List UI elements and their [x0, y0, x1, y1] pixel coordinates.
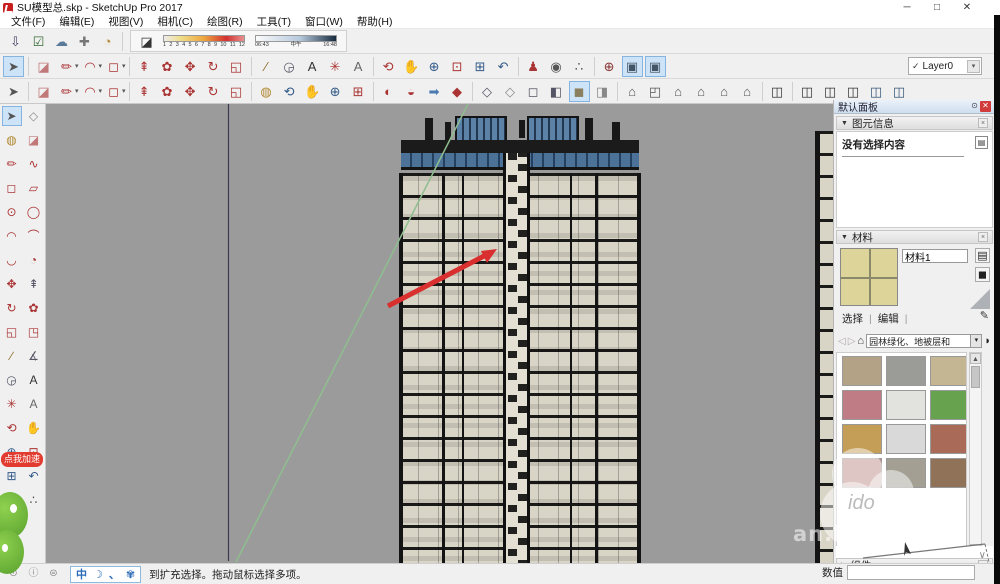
pushpull-tool-icon[interactable]: ⇞ [134, 81, 155, 102]
status-hint-text: 到扩充选择。拖动鼠标选择多项。 [149, 567, 307, 582]
eraser-tool-icon[interactable]: ◪ [33, 56, 54, 77]
scale-tool-icon[interactable]: ◱ [2, 322, 22, 342]
palette-row: ∕∡ [0, 346, 45, 366]
menu-item-4[interactable]: 绘图(R) [200, 14, 250, 29]
line-tool-icon[interactable]: ✏ [56, 81, 77, 102]
date-tick: 8 [208, 42, 211, 48]
forward-arrow-icon[interactable]: ▷ [848, 336, 856, 347]
scale-tool-icon[interactable]: ◱ [226, 81, 247, 102]
eyedropper-icon[interactable]: ✎ [980, 309, 989, 322]
style-hidden-line-icon[interactable]: ◻ [523, 81, 544, 102]
protractor-tool-icon[interactable]: ◶ [2, 370, 22, 390]
roof-parapet [401, 140, 639, 153]
ime-toolbar[interactable]: 中☽、✾ [70, 566, 141, 583]
section-toggle-b-icon[interactable]: ▣ [645, 56, 666, 77]
shadow-date-ticks: 123456789101112 [163, 42, 245, 48]
tape-measure-tool-icon[interactable]: ∕ [256, 56, 277, 77]
add-link-icon-icon[interactable]: ✚ [74, 31, 95, 52]
detail-arrow-icon[interactable]: ◗ [984, 335, 991, 347]
home-icon[interactable]: ⌂ [857, 335, 864, 347]
palette-row: ⟲✋ [0, 418, 45, 438]
building-model[interactable] [399, 116, 641, 563]
rotate-tool-icon[interactable]: ↻ [203, 56, 224, 77]
palette-row: ◡◔ [0, 250, 45, 270]
toolbar-separator [251, 82, 252, 101]
toolbar-separator [472, 82, 473, 101]
fog-toggle-icon[interactable]: ◒ [401, 81, 422, 102]
move-tool-icon[interactable]: ✥ [180, 56, 201, 77]
view-back-icon[interactable]: ⌂ [691, 81, 712, 102]
followme-tool-icon[interactable]: ✿ [157, 56, 178, 77]
display-section-planes-icon[interactable]: ◫ [797, 81, 818, 102]
palette-row: ⊙◯ [0, 202, 45, 222]
text-tool-icon[interactable]: A [24, 370, 44, 390]
polygon-tool-icon[interactable]: ◯ [24, 202, 44, 222]
chevron-down-icon[interactable]: ▾ [99, 62, 103, 70]
section-toggle-a-icon[interactable]: ▣ [622, 56, 643, 77]
orbit-tool-icon[interactable]: ⟲ [279, 81, 300, 102]
menu-item-3[interactable]: 相机(C) [150, 14, 200, 29]
chevron-down-icon: ▼ [841, 234, 848, 241]
style-xray-icon[interactable]: ◇ [477, 81, 498, 102]
export-image-icon[interactable]: ➡ [424, 81, 445, 102]
layer-dropdown[interactable]: ✓ Layer0 ▾ [908, 57, 982, 75]
palette-row: ◱◳ [0, 322, 45, 342]
shadow-toggle-icon[interactable]: ◪ [136, 31, 157, 52]
model-info-icon[interactable]: ◆ [447, 81, 468, 102]
building-column [595, 173, 598, 563]
menu-item-0[interactable]: 文件(F) [4, 14, 52, 29]
view-top-icon[interactable]: ◰ [645, 81, 666, 102]
toolbar-row-1: ⇩☑☁✚◔ ◪ 123456789101112 06:43 中午 16:48 [0, 29, 1000, 54]
toolbar-separator [617, 82, 618, 101]
building-column [442, 173, 445, 563]
ime-item-0[interactable]: 中 [76, 566, 87, 582]
palette-row: ↻✿ [0, 298, 45, 318]
materials-close-icon[interactable]: × [978, 232, 988, 242]
second-building-partial[interactable] [815, 131, 834, 563]
ime-item-3[interactable]: ✾ [126, 568, 135, 581]
palette-row: ⊞↶ [0, 466, 45, 486]
zoom-tool-icon[interactable]: ⊕ [424, 56, 445, 77]
roof-chimney [585, 118, 593, 140]
style-monochrome-icon[interactable]: ◨ [592, 81, 613, 102]
display-pane-icon[interactable]: ◼ [975, 267, 990, 282]
toolbar-separator [373, 82, 374, 101]
rectangle-tool-icon[interactable]: ◻ [2, 178, 22, 198]
ime-item-2[interactable]: 、 [109, 566, 120, 582]
move-tool-icon[interactable]: ✥ [180, 81, 201, 102]
zoom-extents-tool-icon[interactable]: ⊞ [348, 81, 369, 102]
entity-info-body: 没有选择内容 ▤ [836, 131, 993, 228]
stair-core [503, 153, 530, 563]
walk-tool-icon[interactable]: ∴ [569, 56, 590, 77]
style-shaded-icon[interactable]: ◧ [546, 81, 567, 102]
material-thumb-metal-fence[interactable] [886, 424, 926, 454]
building-column [399, 173, 403, 563]
rotate-tool-icon[interactable]: ↻ [2, 298, 22, 318]
date-tick: 12 [239, 42, 245, 48]
roof-chimney [519, 120, 525, 138]
maximize-button[interactable]: □ [922, 0, 952, 15]
axes-tool-icon[interactable]: ✳ [2, 394, 22, 414]
mascot-eye [2, 544, 8, 552]
orbit-tool-icon[interactable]: ⟲ [378, 56, 399, 77]
entity-details-toggle-icon[interactable]: ▤ [975, 136, 988, 149]
thumbnails-scrollbar[interactable]: ▲ ▼ [969, 352, 982, 556]
layer-dropdown-value: Layer0 [923, 61, 954, 72]
status-circle-icon-2[interactable]: ⊜ [47, 568, 60, 581]
tape-measure-tool-icon[interactable]: ∕ [2, 346, 22, 366]
arc-tool-icon[interactable]: ◠ [80, 56, 101, 77]
toolbar-separator [518, 57, 519, 76]
material-name-input[interactable] [902, 249, 968, 263]
toolbar-separator [792, 82, 793, 101]
rectangle-tool-icon[interactable]: ◻ [103, 81, 124, 102]
view-front-icon[interactable]: ⌂ [668, 81, 689, 102]
menu-item-6[interactable]: 窗口(W) [298, 14, 350, 29]
material-thumb-pebbles-large[interactable] [930, 356, 967, 386]
default-tray-panel: 默认面板 ⊙ ✕ ▼ 图元信息 × 没有选择内容 ▤ ▼ 材料 × ▤ ◼ 选择… [833, 100, 994, 563]
zoom-extents-tool-icon[interactable]: ⊞ [2, 466, 22, 486]
materials-tabs: 选择 | 编辑 | [840, 311, 907, 326]
followme-tool-icon[interactable]: ✿ [24, 298, 44, 318]
palette-row: ◍◪ [0, 130, 45, 150]
import-model-icon-icon[interactable]: ⇩ [5, 31, 26, 52]
chevron-down-icon[interactable]: ▾ [970, 335, 981, 347]
material-thumb-solid-gold[interactable] [842, 424, 882, 454]
date-tick: 9 [214, 42, 217, 48]
move-tool-icon[interactable]: ✥ [2, 274, 22, 294]
ime-item-1[interactable]: ☽ [93, 568, 103, 581]
menu-bar: 文件(F)编辑(E)视图(V)相机(C)绘图(R)工具(T)窗口(W)帮助(H) [0, 15, 1000, 29]
pushpull-tool-icon[interactable]: ⇞ [134, 56, 155, 77]
date-tick: 4 [182, 42, 185, 48]
date-tick: 1 [163, 42, 166, 48]
view-left-icon[interactable]: ⌂ [714, 81, 735, 102]
building-column [637, 173, 641, 563]
arc-tool-icon[interactable]: ◠ [80, 81, 101, 102]
select-tool-icon[interactable]: ➤ [3, 56, 24, 77]
menu-item-1[interactable]: 编辑(E) [52, 14, 101, 29]
view-right-icon[interactable]: ⌂ [737, 81, 758, 102]
axes-tool-icon[interactable]: ✳ [325, 56, 346, 77]
dimension-tool-icon[interactable]: ∡ [24, 346, 44, 366]
cloud-upload-icon-icon[interactable]: ☁ [51, 31, 72, 52]
offset-tool-icon[interactable]: ◳ [24, 322, 44, 342]
material-thumb-pebbles-gray[interactable] [886, 458, 926, 488]
pie-tool-icon[interactable]: ◔ [24, 250, 44, 270]
panel-title: 默认面板 [838, 99, 878, 114]
menu-item-7[interactable]: 帮助(H) [350, 14, 400, 29]
building-column [462, 173, 464, 563]
accelerator-badge[interactable]: 点我加速 [1, 452, 43, 467]
palette-row: ◶A [0, 370, 45, 390]
materials-title: 材料 [852, 230, 873, 245]
roof-chimney [425, 118, 433, 140]
circle-tool-icon[interactable]: ⊙ [2, 202, 22, 222]
material-thumbnails-grid [836, 352, 967, 556]
line-tool-icon[interactable]: ✏ [2, 154, 22, 174]
toolbar-separator [28, 82, 29, 101]
measurement-box: 数值 [822, 565, 975, 580]
style-shaded-textures-icon[interactable]: ◼ [569, 81, 590, 102]
followme-tool-icon[interactable]: ✿ [157, 81, 178, 102]
entity-info-close-icon[interactable]: × [978, 118, 988, 128]
entity-info-header[interactable]: ▼ 图元信息 × [836, 116, 993, 130]
shadow-date-slider[interactable]: 123456789101112 [163, 35, 245, 48]
sketchup-logo-icon [3, 3, 13, 13]
make-component-tool-icon[interactable]: ◇ [24, 106, 44, 126]
eraser-tool-icon[interactable]: ◪ [33, 81, 54, 102]
material-thumb-gravel-gray[interactable] [886, 356, 926, 386]
panel-close-button[interactable]: ✕ [980, 101, 991, 112]
panel-title-bar[interactable]: 默认面板 ⊙ ✕ [834, 100, 995, 114]
tab-edit[interactable]: 编辑 [876, 311, 901, 326]
date-tick: 10 [220, 42, 226, 48]
palette-row: ✏∿ [0, 154, 45, 174]
select-tool-icon[interactable]: ➤ [3, 81, 24, 102]
material-category-dropdown[interactable]: 园林绿化、地被层和 ▾ [866, 334, 982, 348]
materials-header[interactable]: ▼ 材料 × [836, 230, 993, 244]
core-windows [518, 153, 527, 563]
section-plane-tool-icon[interactable]: ◫ [767, 81, 788, 102]
mascot-eye [10, 504, 17, 513]
title-bar: SU模型总.skp - SketchUp Pro 2017 ─□✕ [0, 0, 1000, 15]
entity-info-empty-text: 没有选择内容 [842, 137, 964, 157]
chevron-down-icon[interactable]: ▾ [122, 87, 126, 95]
material-thumb-mulch-red[interactable] [930, 424, 967, 454]
rectangle-tool-icon[interactable]: ◻ [103, 56, 124, 77]
chevron-down-icon[interactable]: ▾ [99, 87, 103, 95]
eraser-tool-icon[interactable]: ◪ [24, 130, 44, 150]
orbit-tool-icon[interactable]: ⟲ [2, 418, 22, 438]
zoom-extents-tool-icon[interactable]: ⊞ [470, 56, 491, 77]
view-iso-icon[interactable]: ⌂ [622, 81, 643, 102]
material-category-value: 园林绿化、地被层和 [867, 335, 970, 348]
style-wireframe-icon[interactable]: ◇ [500, 81, 521, 102]
toolbar-separator [28, 57, 29, 76]
toolbar-separator [251, 57, 252, 76]
status-circle-icon-1[interactable]: ⓘ [27, 568, 40, 581]
3d-text-tool-icon[interactable]: A [24, 394, 44, 414]
rotated-rectangle-tool-icon[interactable]: ▱ [24, 178, 44, 198]
three-point-arc-tool-icon[interactable]: ◡ [2, 250, 22, 270]
shadow-toolbar: ◪ 123456789101112 06:43 中午 16:48 [130, 30, 347, 52]
model-canvas[interactable] [46, 104, 834, 563]
entity-info-title: 图元信息 [852, 116, 894, 131]
layer-check-icon: ✓ [912, 61, 920, 72]
date-tick: 6 [195, 42, 198, 48]
freehand-tool-icon[interactable]: ∿ [24, 154, 44, 174]
toolbar-separator [122, 32, 123, 51]
zoom-full-view-icon[interactable]: ⊕ [599, 56, 620, 77]
select-tool-icon[interactable]: ➤ [2, 106, 22, 126]
core-windows [508, 153, 517, 563]
tab-divider: | [905, 313, 908, 325]
palette-row: ➤◇ [0, 106, 45, 126]
protractor-tool-icon[interactable]: ◶ [279, 56, 300, 77]
pin-icon[interactable]: ⊙ [969, 101, 980, 112]
date-tick: 2 [169, 42, 172, 48]
material-thumb-gravel-brown[interactable] [930, 458, 967, 488]
roof-chimney [612, 122, 620, 140]
material-thumb-solid-green[interactable] [930, 390, 967, 420]
chevron-down-icon: ▼ [841, 120, 848, 127]
toolbar-row-2: ✓ Layer0 ▾ ➤◪✏▾◠▾◻▾⇞✿✥↻◱∕◶A✳A⟲✋⊕⊡⊞↶♟◉∴⊕▣… [0, 54, 1000, 79]
roof-penthouse [527, 116, 579, 142]
toolbar-separator [129, 82, 130, 101]
text-tool-icon[interactable]: A [302, 56, 323, 77]
palette-row: ✳A [0, 394, 45, 414]
pan-tool-icon[interactable]: ✋ [302, 81, 323, 102]
arc-tool-icon[interactable]: ◠ [2, 226, 22, 246]
chevron-down-icon[interactable]: ▾ [75, 87, 79, 95]
palette-row: ◻▱ [0, 178, 45, 198]
time-noon-label: 中午 [290, 42, 301, 48]
menu-item-5[interactable]: 工具(T) [250, 14, 298, 29]
building-column [570, 173, 572, 563]
window-title: SU模型总.skp - SketchUp Pro 2017 [17, 0, 183, 15]
look-around-tool-icon[interactable]: ◉ [546, 56, 567, 77]
toolbar1-icons: ⇩☑☁✚◔ [4, 31, 119, 52]
measurement-input[interactable] [847, 565, 975, 580]
section-blue-b-icon[interactable]: ◫ [889, 81, 910, 102]
shadows-toggle-icon[interactable]: ◐ [378, 81, 399, 102]
pushpull-tool-icon[interactable]: ⇞ [24, 274, 44, 294]
position-camera-tool-icon[interactable]: ♟ [523, 56, 544, 77]
menu-item-2[interactable]: 视图(V) [101, 14, 150, 29]
chevron-down-icon[interactable]: ▾ [122, 62, 126, 70]
zoom-previous-tool-icon[interactable]: ↶ [493, 56, 514, 77]
material-thumb-gravel-tan[interactable] [842, 356, 882, 386]
measurement-label: 数值 [822, 565, 843, 580]
chevron-down-icon[interactable]: ▾ [75, 62, 79, 70]
paint-tool-icon[interactable]: ◍ [2, 130, 22, 150]
create-material-icon[interactable]: ▤ [975, 248, 990, 263]
time-end-label: 16:48 [323, 42, 337, 48]
two-point-arc-tool-icon[interactable]: ⌒ [24, 226, 44, 246]
roof-chimney [445, 122, 451, 140]
toolbar-separator [129, 57, 130, 76]
materials-body: ▤ ◼ 选择 | 编辑 | ✎ [836, 245, 993, 332]
roof-penthouse [455, 116, 507, 142]
date-tick: 3 [176, 42, 179, 48]
shadow-time-slider[interactable]: 06:43 中午 16:48 [255, 35, 337, 48]
window-controls: ─□✕ [892, 0, 982, 15]
line-tool-icon[interactable]: ✏ [56, 56, 77, 77]
minimize-button[interactable]: ─ [892, 0, 922, 15]
material-thumb-gravel-pink[interactable] [842, 458, 882, 488]
3d-text-tool-icon[interactable]: A [348, 56, 369, 77]
scale-tool-icon[interactable]: ◱ [226, 56, 247, 77]
desktop-black-strip [994, 15, 1000, 584]
scrollbar-thumb[interactable] [971, 366, 980, 388]
material-preview-swatch[interactable] [840, 248, 898, 306]
tab-divider: | [869, 313, 872, 325]
sample-paint-triangle[interactable] [970, 289, 990, 309]
date-tick: 5 [189, 42, 192, 48]
zoom-tool-icon[interactable]: ⊕ [325, 81, 346, 102]
date-tick: 7 [201, 42, 204, 48]
material-thumb-pavers-white[interactable] [886, 390, 926, 420]
toolbar-separator [594, 57, 595, 76]
toolbar-separator [762, 82, 763, 101]
toolbar-separator [373, 57, 374, 76]
palette-row: ◠⌒ [0, 226, 45, 246]
close-button[interactable]: ✕ [952, 0, 982, 15]
materials-nav-row: ◁ ▷ ⌂ 园林绿化、地被层和 ▾ ◗ [836, 332, 993, 350]
pan-tool-icon[interactable]: ✋ [24, 418, 44, 438]
palette-row: ✥⇞ [0, 274, 45, 294]
support-headset-icon-icon[interactable]: ◔ [97, 31, 118, 52]
zoom-previous-tool-icon[interactable]: ↶ [24, 466, 44, 486]
paint-tool-icon[interactable]: ◍ [256, 81, 277, 102]
chevron-down-icon[interactable]: ▾ [967, 60, 980, 73]
tab-select[interactable]: 选择 [840, 311, 865, 326]
zoom-window-tool-icon[interactable]: ⊡ [447, 56, 468, 77]
validate-icon-icon[interactable]: ☑ [28, 31, 49, 52]
back-arrow-icon[interactable]: ◁ [838, 336, 846, 347]
date-tick: 11 [230, 42, 236, 48]
pan-tool-icon[interactable]: ✋ [401, 56, 422, 77]
rotate-tool-icon[interactable]: ↻ [203, 81, 224, 102]
panel-scroll-chevron-icon[interactable]: ∨ [979, 550, 986, 561]
scroll-up-icon[interactable]: ▲ [970, 353, 981, 364]
time-start-label: 06:43 [255, 42, 269, 48]
material-thumb-solid-pink[interactable] [842, 390, 882, 420]
